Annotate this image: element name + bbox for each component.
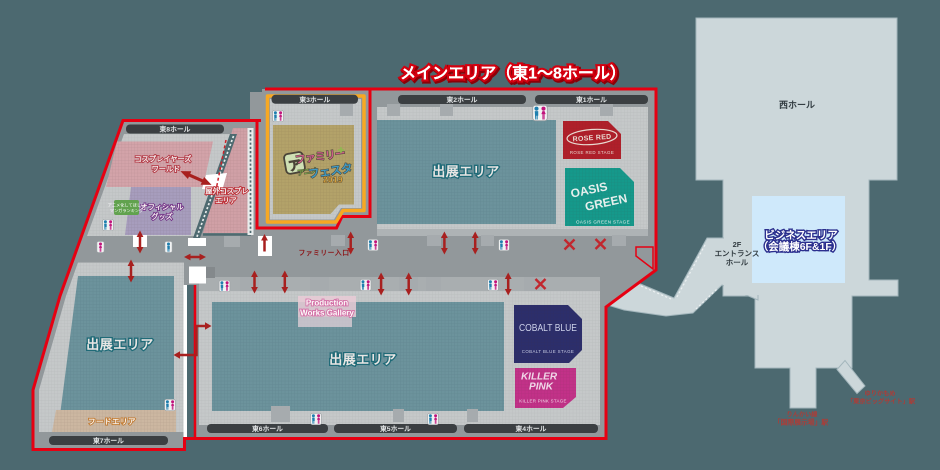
svg-text:屋外コスプレ: 屋外コスプレ — [205, 187, 248, 196]
svg-text:エリア: エリア — [215, 196, 237, 205]
svg-text:COBALT BLUE STAGE: COBALT BLUE STAGE — [522, 349, 574, 354]
svg-text:グッズ: グッズ — [151, 212, 173, 221]
svg-text:2019: 2019 — [323, 176, 343, 185]
svg-text:メインエリア（東1～8ホール）: メインエリア（東1～8ホール） — [400, 64, 626, 83]
svg-text:東6ホール: 東6ホール — [251, 424, 283, 433]
svg-text:PINK: PINK — [529, 382, 554, 393]
svg-text:（会議棟6F&1F）: （会議棟6F&1F） — [758, 240, 843, 253]
svg-text:フードエリア: フードエリア — [88, 417, 136, 426]
svg-text:Works Gallery: Works Gallery — [300, 309, 354, 318]
svg-text:東5ホール: 東5ホール — [379, 424, 411, 433]
svg-text:出展エリア: 出展エリア — [432, 164, 500, 179]
svg-text:マンガランキング: マンガランキング — [110, 207, 143, 214]
svg-text:東8ホール: 東8ホール — [159, 125, 191, 134]
svg-text:オフィシャル: オフィシャル — [141, 203, 185, 212]
svg-text:エントランス: エントランス — [715, 249, 760, 258]
svg-text:東4ホール: 東4ホール — [515, 424, 547, 433]
svg-text:「国際展示場」駅: 「国際展示場」駅 — [774, 418, 829, 427]
svg-text:ファミリー入口: ファミリー入口 — [298, 249, 349, 257]
svg-text:OASIS GREEN STAGE: OASIS GREEN STAGE — [576, 220, 630, 225]
svg-text:COBALT BLUE: COBALT BLUE — [519, 322, 577, 334]
svg-text:りんかい線: りんかい線 — [787, 411, 819, 419]
svg-text:出展エリア: 出展エリア — [86, 337, 154, 352]
svg-text:ROSE RED STAGE: ROSE RED STAGE — [570, 150, 614, 155]
svg-text:東1ホール: 東1ホール — [575, 95, 607, 104]
svg-text:出展エリア: 出展エリア — [329, 352, 397, 367]
svg-text:KILLER PINK STAGE: KILLER PINK STAGE — [519, 399, 566, 404]
svg-text:Production: Production — [306, 299, 348, 308]
svg-text:ワールド: ワールド — [152, 165, 181, 174]
svg-text:東2ホール: 東2ホール — [446, 95, 478, 104]
svg-text:「東京ビッグサイト」駅: 「東京ビッグサイト」駅 — [847, 398, 916, 406]
svg-text:ゆりかもめ: ゆりかもめ — [865, 390, 896, 398]
svg-text:コスプレイヤーズ: コスプレイヤーズ — [135, 155, 193, 164]
svg-text:東3ホール: 東3ホール — [298, 95, 330, 104]
svg-text:東7ホール: 東7ホール — [92, 436, 124, 445]
svg-text:ビジネスエリア: ビジネスエリア — [764, 229, 838, 242]
svg-text:ホール: ホール — [726, 258, 749, 267]
svg-text:2F: 2F — [733, 240, 742, 249]
svg-text:西ホール: 西ホール — [779, 100, 815, 110]
svg-text:✚: ✚ — [338, 146, 345, 155]
